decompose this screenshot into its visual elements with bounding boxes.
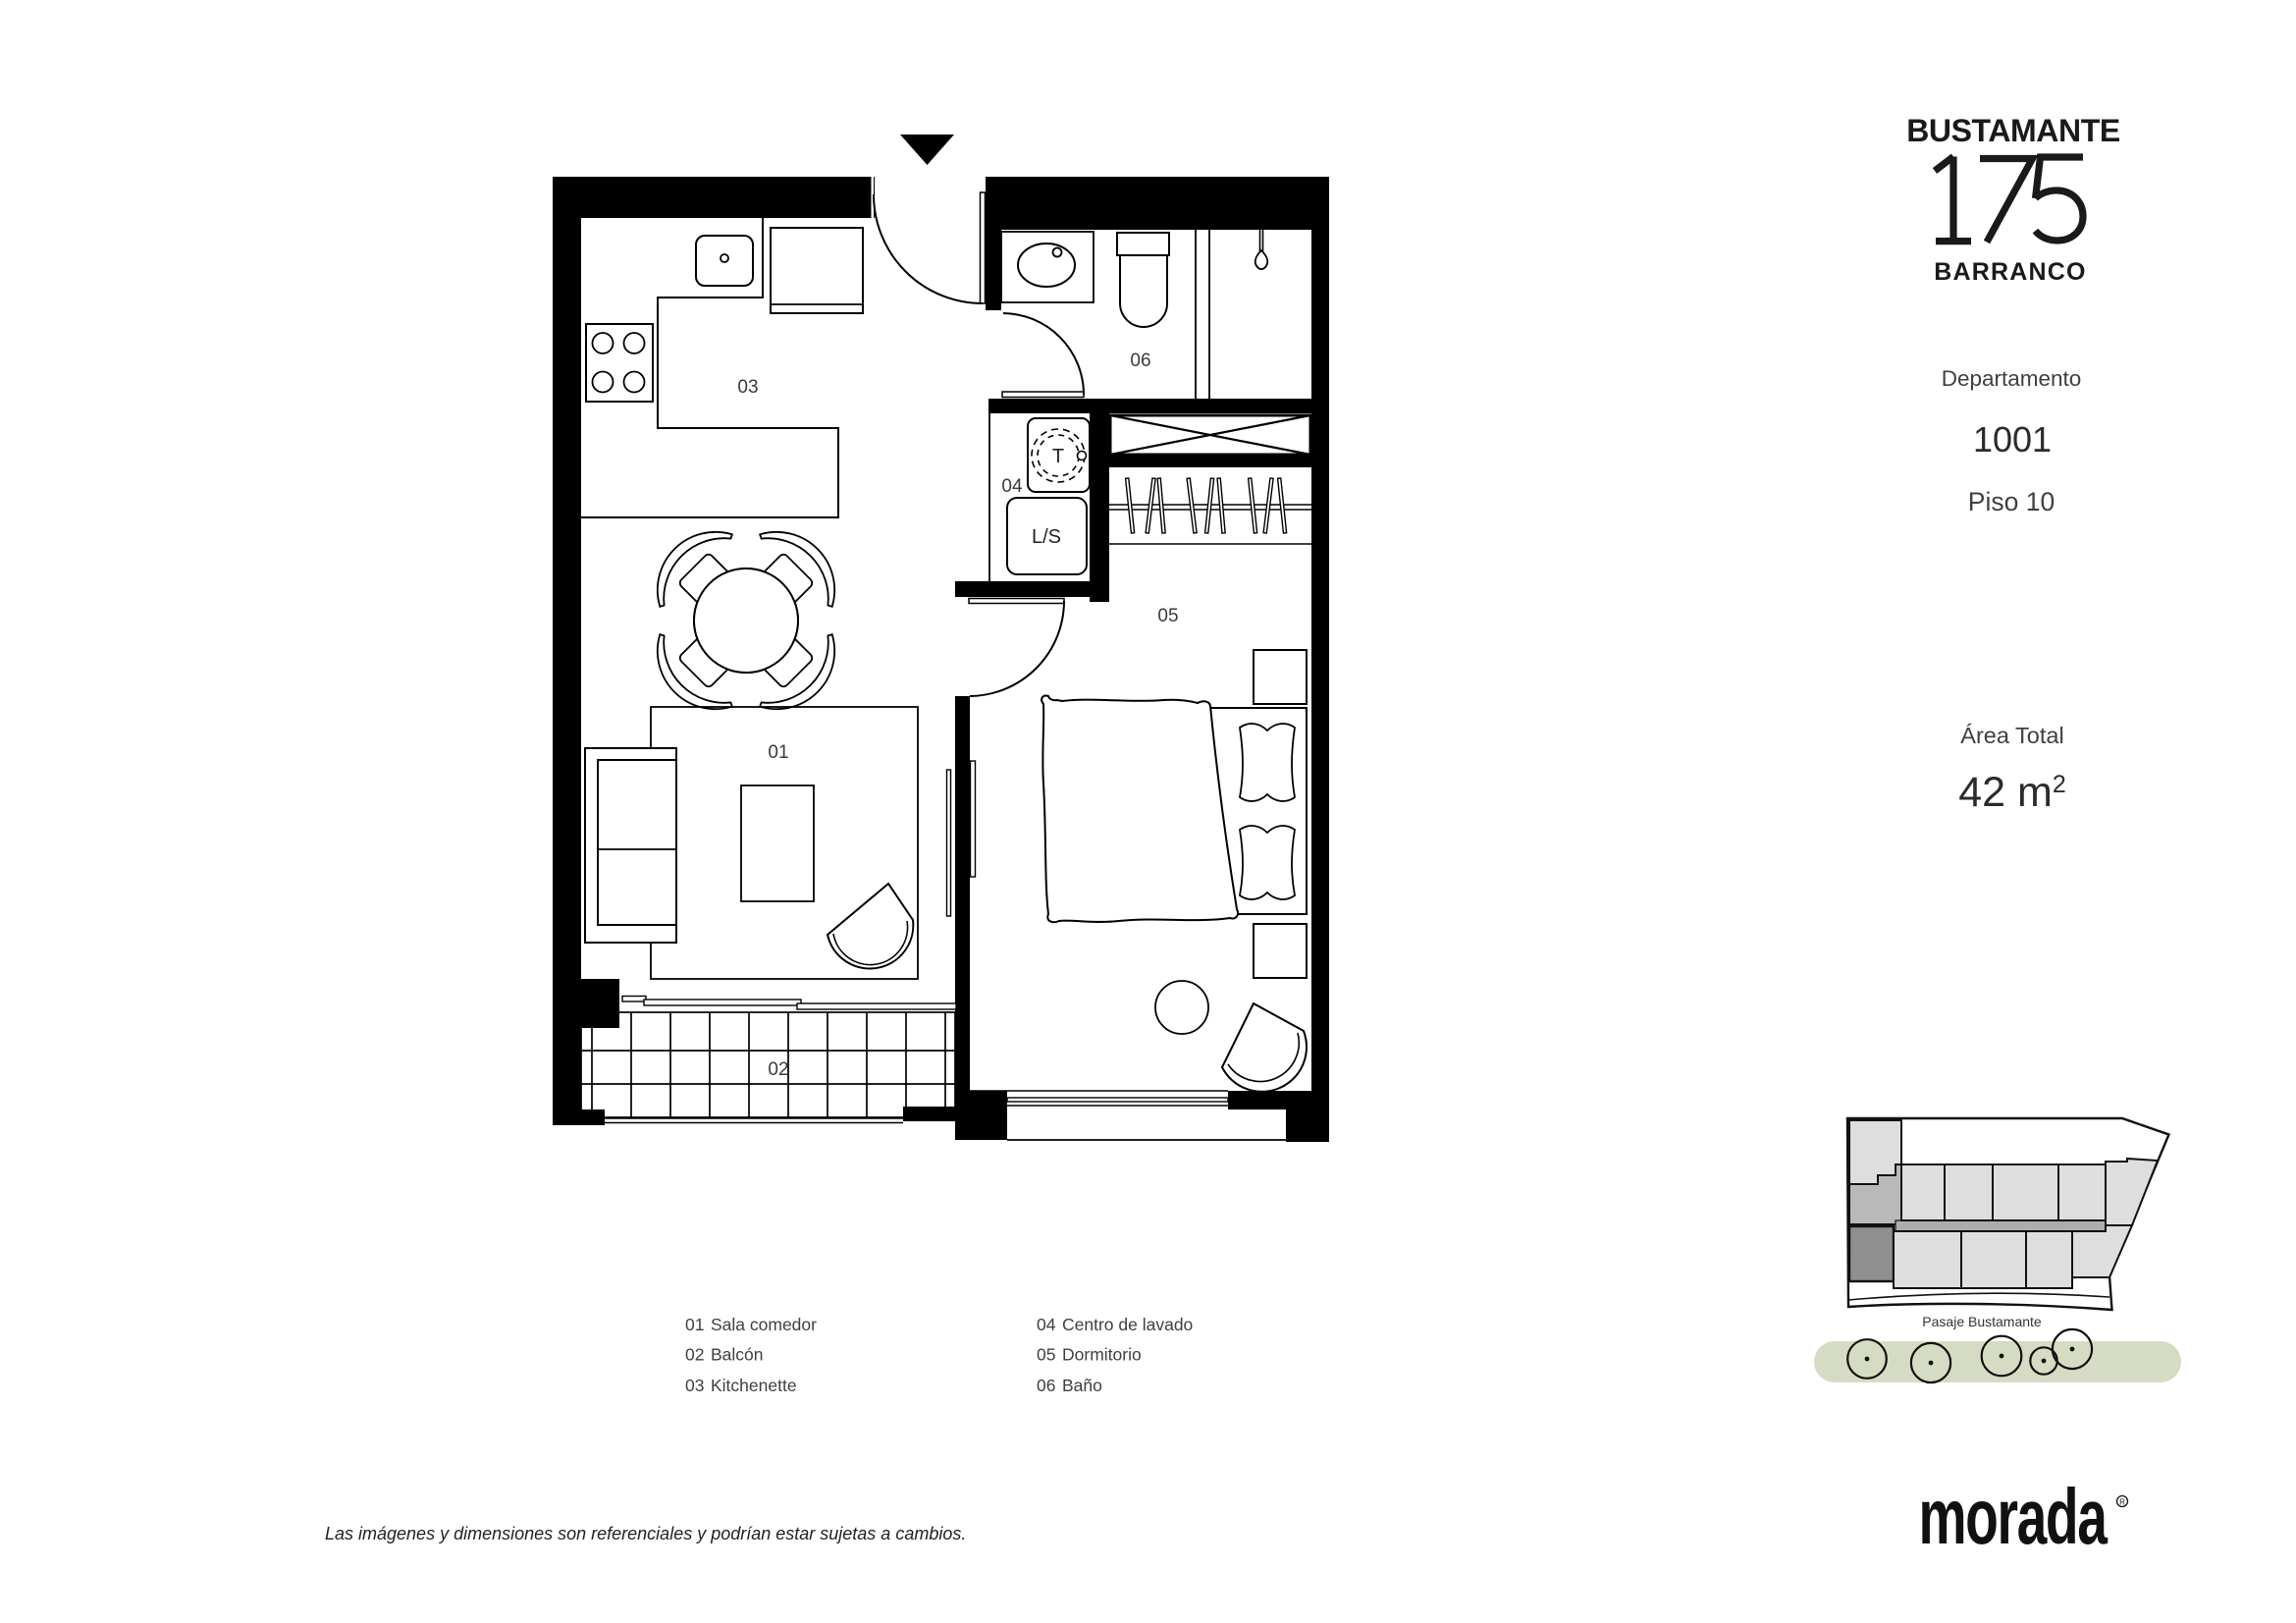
svg-text:BUSTAMANTE: BUSTAMANTE: [1906, 113, 2120, 148]
svg-text:Departamento: Departamento: [1942, 366, 2082, 391]
svg-text:Balcón: Balcón: [711, 1345, 764, 1365]
svg-text:01: 01: [768, 742, 788, 763]
svg-text:1001: 1001: [1973, 419, 2052, 460]
svg-text:R: R: [2119, 1498, 2125, 1507]
svg-text:Sala comedor: Sala comedor: [711, 1315, 817, 1334]
svg-text:03: 03: [737, 377, 758, 398]
svg-text:06: 06: [1037, 1376, 1055, 1395]
svg-text:Baño: Baño: [1062, 1376, 1102, 1395]
svg-text:02: 02: [685, 1345, 704, 1365]
svg-text:Área Total: Área Total: [1960, 723, 2063, 748]
svg-text:42 m2: 42 m2: [1958, 769, 2066, 816]
svg-text:04: 04: [1037, 1315, 1056, 1334]
svg-text:04: 04: [1001, 476, 1023, 497]
svg-text:Las imágenes y dimensiones son: Las imágenes y dimensiones son referenci…: [325, 1524, 966, 1543]
svg-text:Kitchenette: Kitchenette: [711, 1376, 797, 1395]
svg-text:Dormitorio: Dormitorio: [1062, 1345, 1142, 1365]
svg-text:05: 05: [1037, 1345, 1055, 1365]
svg-text:01: 01: [685, 1315, 704, 1334]
svg-text:Centro de lavado: Centro de lavado: [1062, 1315, 1193, 1334]
svg-text:03: 03: [685, 1376, 704, 1395]
svg-text:05: 05: [1157, 606, 1178, 626]
svg-text:06: 06: [1130, 351, 1150, 371]
svg-text:02: 02: [768, 1059, 788, 1080]
svg-text:Piso 10: Piso 10: [1968, 487, 2055, 516]
svg-text:morada: morada: [1918, 1473, 2108, 1561]
svg-text:L/S: L/S: [1032, 526, 1061, 548]
svg-text:BARRANCO: BARRANCO: [1934, 258, 2086, 286]
svg-text:T: T: [1052, 446, 1064, 467]
svg-text:Pasaje Bustamante: Pasaje Bustamante: [1922, 1314, 2042, 1329]
